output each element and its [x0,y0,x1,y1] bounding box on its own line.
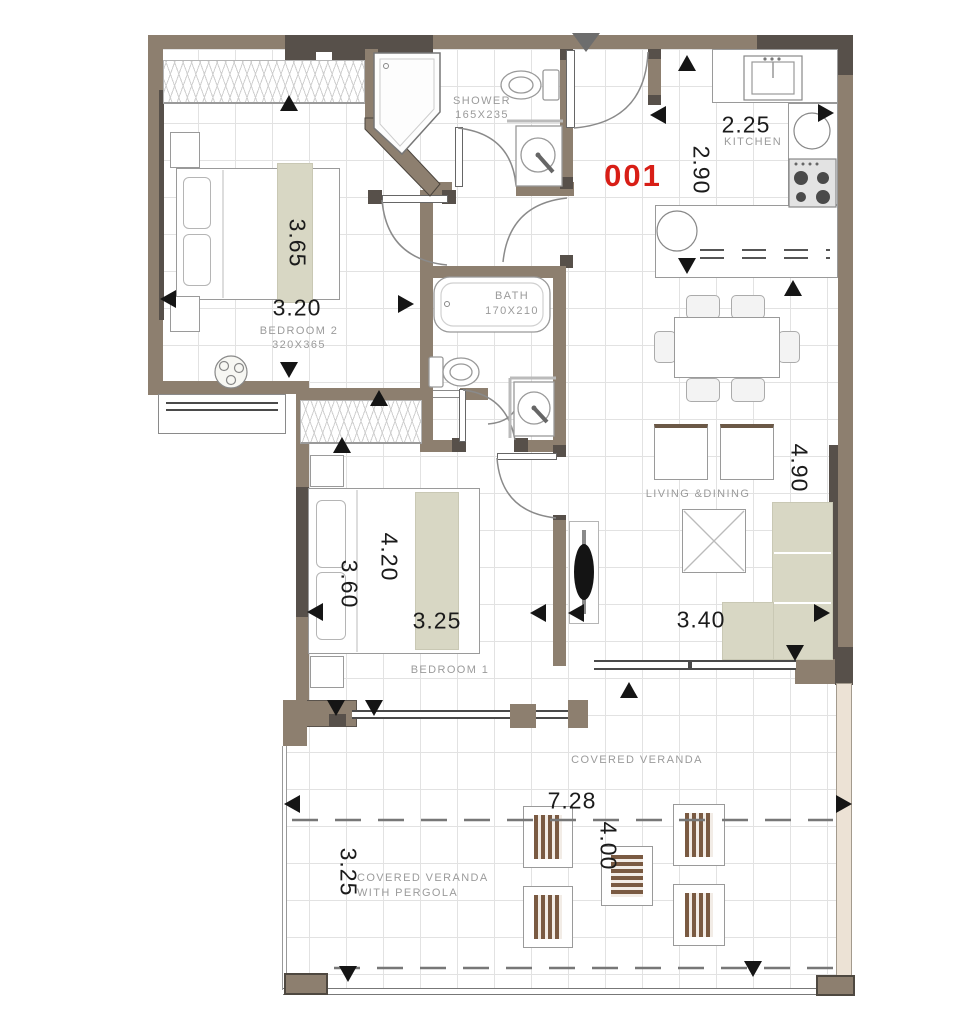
kitchen-sink-icon [744,56,802,100]
entrance-arrow [572,33,600,52]
room-label-bath: BATH [495,290,529,302]
dim-arrow-down [327,700,345,716]
dim-arrow-down [280,362,298,378]
dim-arrow-right [814,604,830,622]
dim-arrow-left [307,603,323,621]
dim-arrow-up [678,55,696,71]
room-label-living: LIVING &DINING [646,488,751,500]
dim-arrow-up [333,437,351,453]
dim-arrow-down [339,966,357,982]
dim-arrow-right [818,104,834,122]
room-label-pergola-1: COVERED VERANDA [357,872,489,884]
room-label-pergola-2: WITH PERGOLA [357,887,458,899]
plant-icon [215,356,247,388]
dim-kitchen-h: 2.25 [722,112,771,139]
dim-bedroom1-v2: 3.60 [336,560,363,609]
hob-icon [789,159,836,207]
dim-arrow-left [160,290,176,308]
tv-icon [574,530,594,614]
counter-dashes [700,250,830,258]
dim-bedroom1-v1: 4.20 [376,533,403,582]
room-label-veranda: COVERED VERANDA [571,754,703,766]
dim-living-h: 3.40 [677,607,726,634]
round-sink-icon [657,211,697,251]
dim-arrow-left [650,106,666,124]
dim-arrow-up [620,682,638,698]
dim-veranda-v: 4.00 [595,822,622,871]
dim-kitchen-v: 2.90 [688,146,715,195]
room-label-shower: SHOWER [453,95,511,107]
dim-arrow-left [284,795,300,813]
dim-veranda-h: 7.28 [548,788,597,815]
dim-arrow-left [530,604,546,622]
dim-living-v: 4.90 [786,444,813,493]
dim-bedroom1-h: 3.25 [413,608,462,635]
room-size-bedroom2: 320X365 [272,339,326,351]
room-label-bedroom2: BEDROOM 2 [260,325,339,337]
dim-arrow-down [365,700,383,716]
coffee-table-x [684,511,744,571]
dim-arrow-up [784,280,802,296]
dim-arrow-down [744,961,762,977]
dim-arrow-right [836,795,852,813]
room-label-kitchen: KITCHEN [724,136,782,148]
sink-icon [510,378,556,438]
sink-icon [507,121,563,186]
unit-number: 001 [604,158,662,194]
dim-arrow-down [786,645,804,661]
dim-bedroom2-h: 3.20 [273,295,322,322]
dim-arrow-up [280,95,298,111]
dim-arrow-down [678,258,696,274]
room-size-shower: 165X235 [455,109,509,121]
toilet-icon [429,357,479,387]
dim-arrow-up [370,390,388,406]
room-size-bath: 170X210 [485,305,539,317]
dim-arrow-left [568,604,584,622]
dim-bedroom2-v: 3.65 [284,219,311,268]
floor-plan: 001 3.65 3.20 BEDROOM 2 320X365 SHOWER 1… [0,0,958,1024]
detail-overlay [0,0,958,1024]
room-label-bedroom1: BEDROOM 1 [411,664,490,676]
dim-arrow-right [398,295,414,313]
